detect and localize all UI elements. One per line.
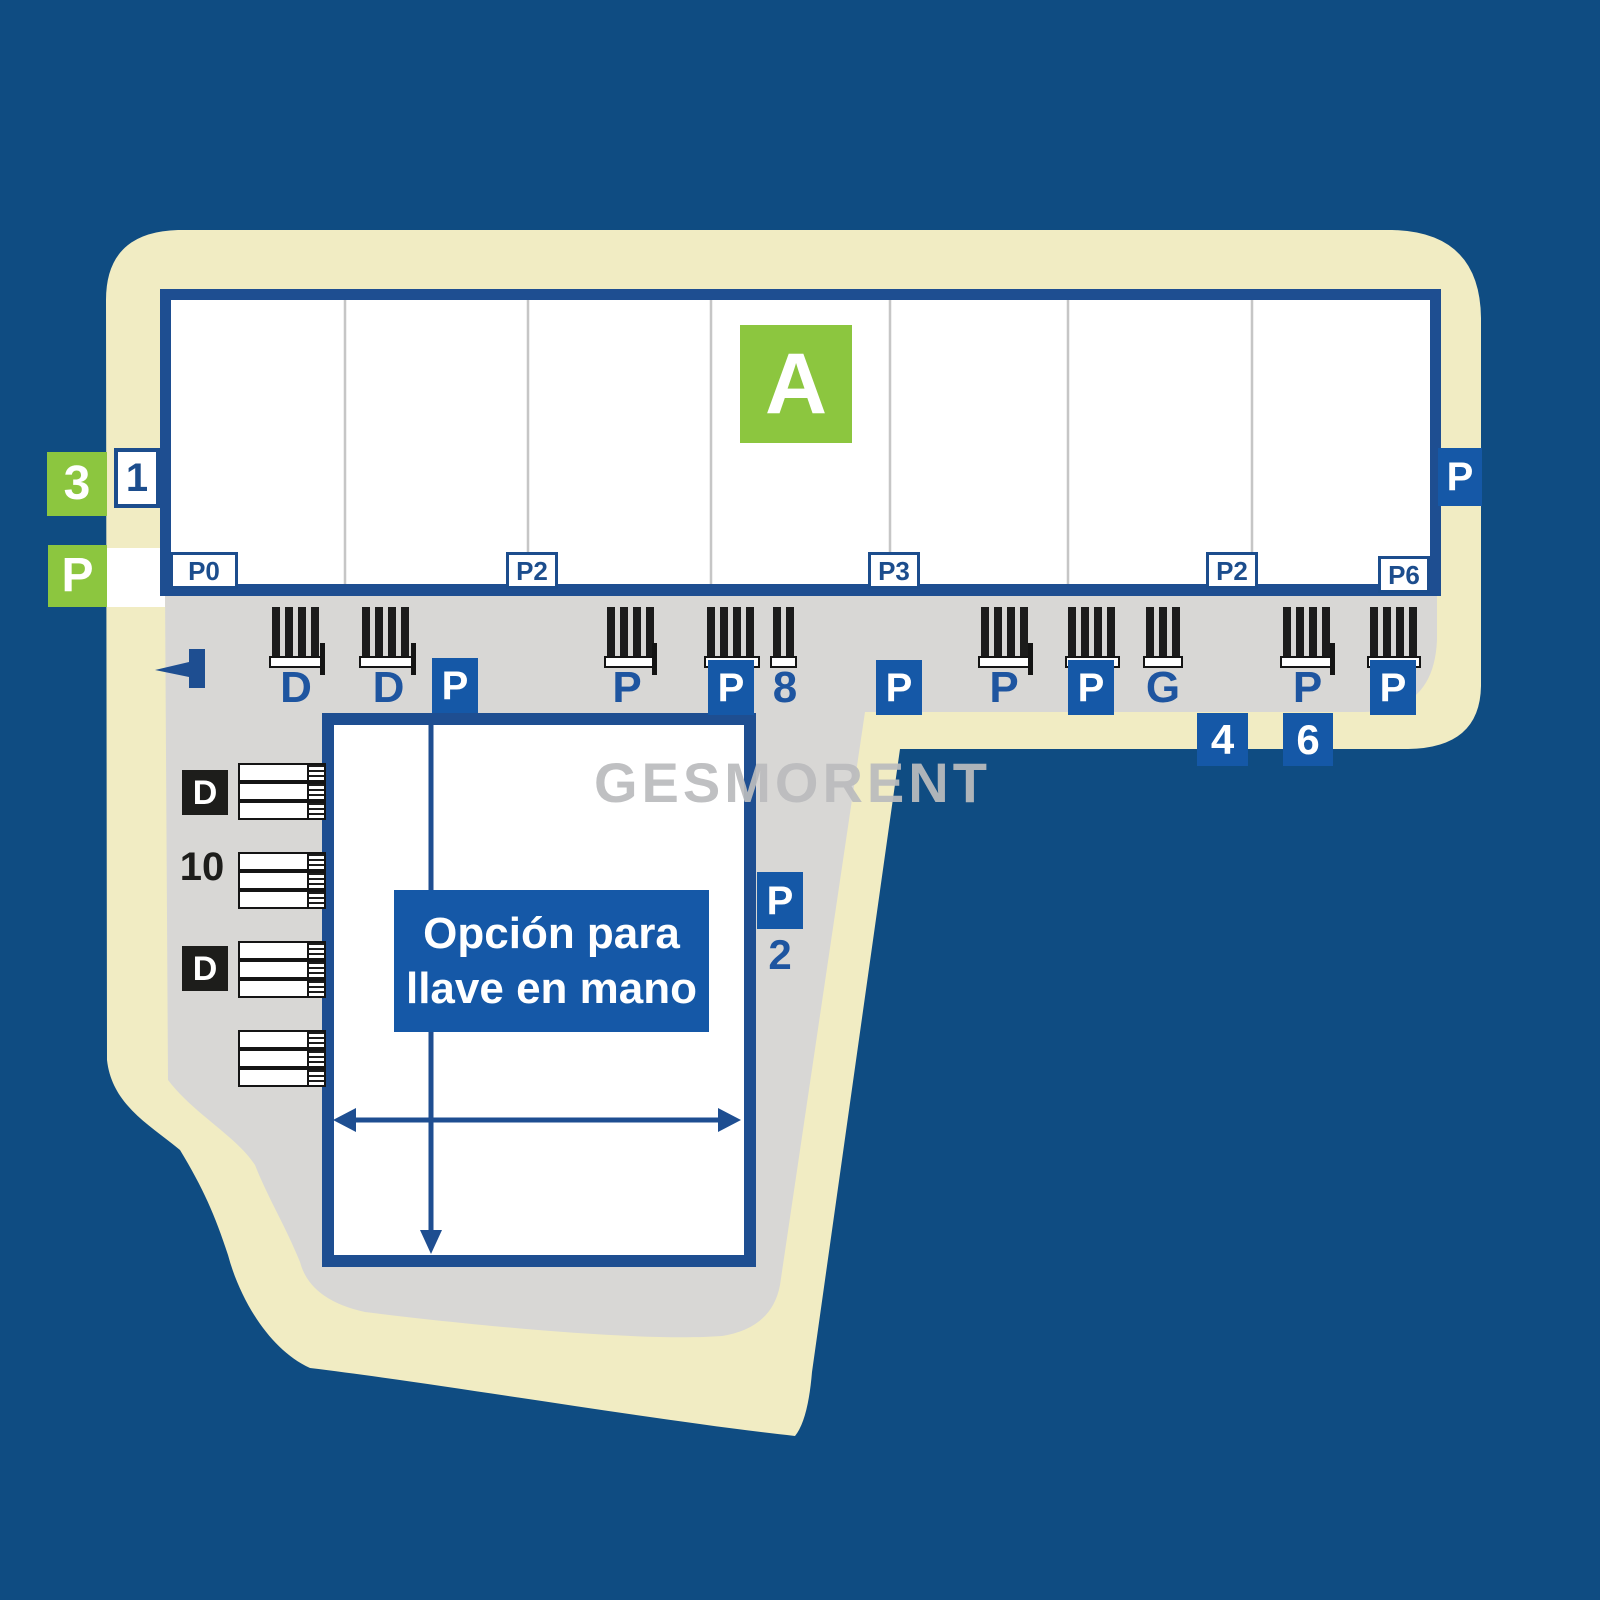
row-parking-badge-2: P: [708, 660, 754, 715]
roller-door-icon-narrow: [773, 607, 794, 657]
panel-label-p0: P0: [170, 552, 238, 589]
dock-bay-icon: [238, 852, 326, 871]
unit-1-badge: 1: [114, 448, 160, 508]
row-label-p3: P: [1283, 666, 1332, 710]
dock-bay-icon: [238, 1049, 326, 1068]
roller-door-icon: [1068, 607, 1117, 657]
dock-bay-icon: [238, 979, 326, 998]
dock-bay-icon: [238, 782, 326, 801]
keyhand-number-label: 2: [757, 932, 803, 978]
roller-door-icon: [707, 607, 757, 657]
dock-bay-icon: [238, 801, 326, 820]
row-parking-badge-1: P: [432, 658, 478, 713]
right-parking-badge: P: [1438, 448, 1482, 506]
keyhand-message-box: Opción para llave en mano: [394, 890, 709, 1032]
row-label-8: 8: [771, 666, 799, 710]
site-plan: GESMORENT A 3 1 P P P0 P2 P3 P2 P6 D D P…: [0, 0, 1600, 1600]
roller-door-icon-narrow: [1146, 607, 1180, 657]
unit-4-badge: 4: [1197, 713, 1248, 766]
roller-door-icon: [1283, 607, 1332, 657]
entrance-gap: [107, 548, 165, 607]
dock-bay-icon: [238, 871, 326, 890]
watermark: GESMORENT: [594, 750, 991, 815]
row-parking-badge-3: P: [876, 660, 922, 715]
row-label-p2: P: [979, 666, 1029, 710]
panel-label-p2b: P2: [1206, 552, 1258, 589]
row-parking-badge-4: P: [1068, 660, 1114, 715]
roller-door-icon: [1370, 607, 1418, 657]
dock-bay-icon: [238, 1030, 326, 1049]
dock-bay-icon: [238, 890, 326, 909]
keyhand-message-line2: llave en mano: [406, 961, 697, 1016]
keyhand-message-line1: Opción para: [423, 906, 680, 961]
panel-label-p3: P3: [868, 552, 920, 589]
dock-label-d1: D: [182, 770, 228, 815]
dock-bay-icon: [238, 763, 326, 782]
row-label-g: G: [1146, 666, 1180, 710]
panel-label-p2a: P2: [506, 552, 558, 589]
building-unit-a-badge: A: [740, 325, 852, 443]
roller-door-icon: [362, 607, 413, 657]
unit-6-badge: 6: [1283, 713, 1333, 766]
row-parking-badge-5: P: [1370, 660, 1416, 715]
left-parking-badge: P: [48, 545, 107, 607]
dock-label-10: 10: [174, 846, 230, 888]
dock-label-d2: D: [182, 946, 228, 991]
left-number-badge: 3: [47, 452, 107, 516]
dock-bay-icon: [238, 960, 326, 979]
row-label-p1: P: [603, 666, 651, 710]
roller-door-icon: [272, 607, 322, 657]
dock-bay-icon: [238, 1068, 326, 1087]
dock-bay-icon: [238, 941, 326, 960]
roller-door-icon: [607, 607, 654, 657]
roller-door-icon: [981, 607, 1030, 657]
panel-label-p6: P6: [1378, 556, 1430, 593]
row-label-d2: D: [363, 666, 414, 710]
row-label-d1: D: [271, 666, 321, 710]
keyhand-parking-badge: P: [757, 872, 803, 929]
